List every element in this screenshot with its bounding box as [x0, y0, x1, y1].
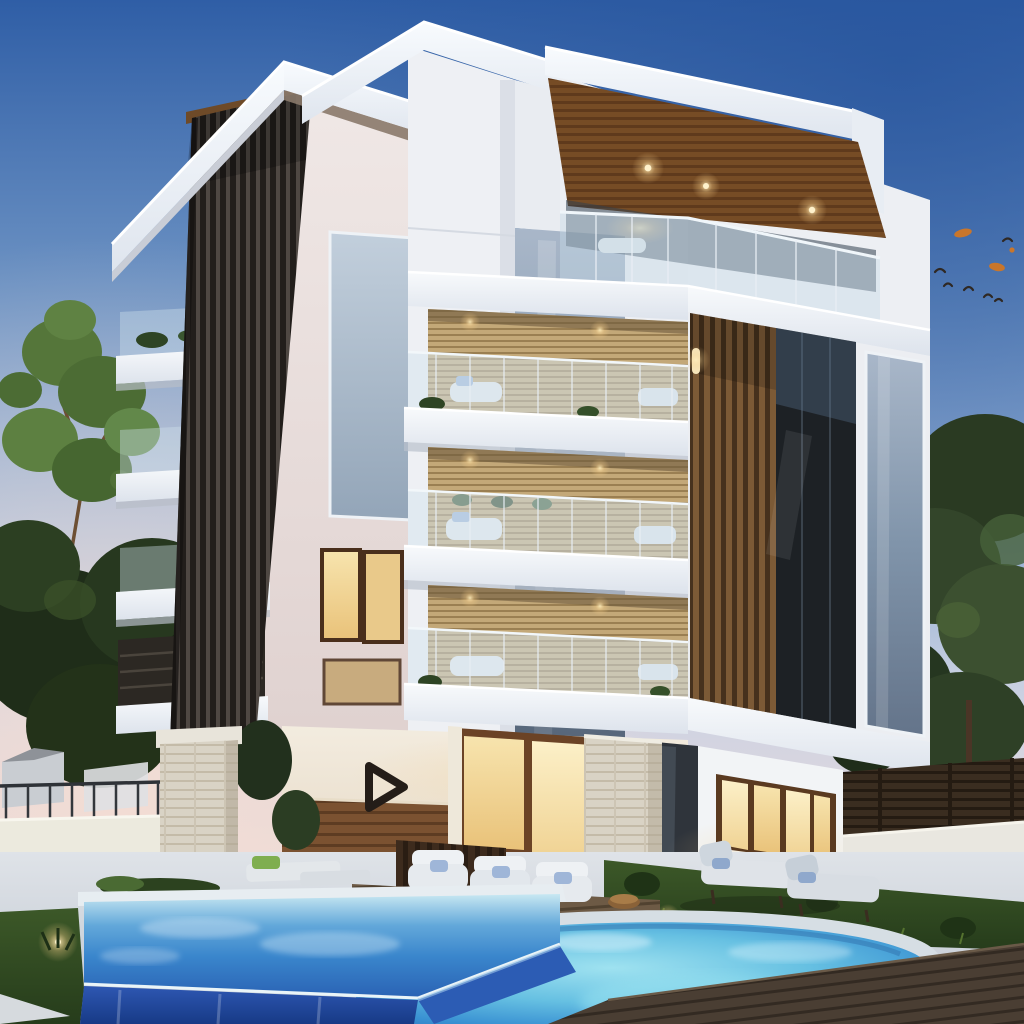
balcony-floor	[408, 585, 688, 700]
left-tower-window-lit	[364, 552, 402, 642]
right-facade	[682, 312, 930, 742]
autumn-leaf	[1009, 247, 1014, 252]
balcony-floor	[408, 447, 688, 562]
scene	[0, 0, 1024, 1024]
render	[0, 0, 1024, 1024]
garden-light	[38, 922, 78, 962]
right-wall-window	[866, 352, 924, 736]
left-tower-window-lit	[322, 550, 360, 640]
picture-window	[448, 726, 600, 864]
left-tower-glass-panel	[330, 232, 414, 520]
left-tower-window-dim	[324, 660, 400, 704]
balcony-floor	[408, 309, 688, 424]
